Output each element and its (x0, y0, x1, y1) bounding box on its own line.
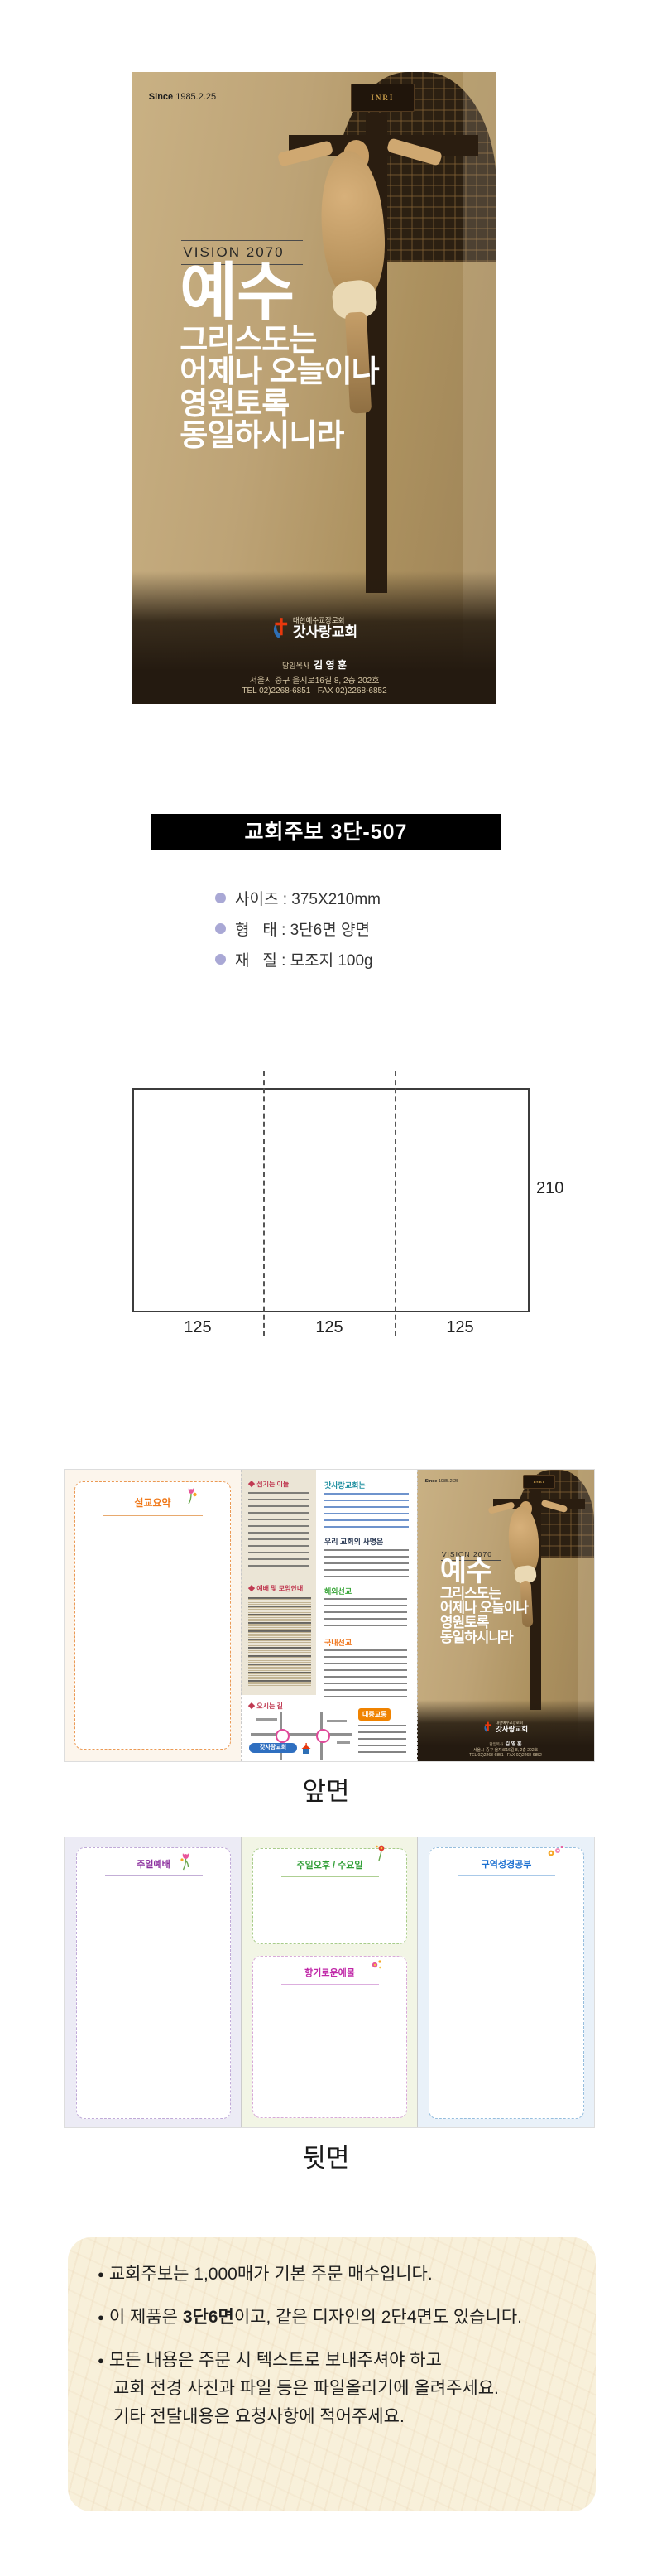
church-contact: TEL 02)2268-6851 FAX 02)2268-6852 (132, 686, 496, 696)
map-label (256, 1718, 277, 1721)
since-date: Since 1985.2.25 (425, 1479, 459, 1484)
diagram-width-label: 125 (173, 1318, 223, 1337)
note-text: 이 제품은 3단6면이고, 같은 디자인의 2단4면도 있습니다. (109, 2305, 522, 2330)
cover-headline: 예수 그리스도는 어제나 오늘이나 영원토록 동일하시니라 (440, 1558, 528, 1645)
bullet-dot-icon (215, 923, 226, 934)
overseas-mission-header: 해외선교 (324, 1586, 352, 1596)
note-text-bold: 3단6면 (183, 2308, 234, 2327)
placeholder-schedule-lines (248, 1597, 311, 1687)
church-address: 서울시 중구 을지로16길 8, 2층 202호 (132, 673, 496, 686)
bullet-icon: ● (98, 2348, 104, 2373)
pastor-label: 담임목사 (282, 662, 314, 670)
back-panel-sunday-worship: 주일예배 (65, 1837, 241, 2127)
church-name: 갓사랑교회 (496, 1726, 528, 1734)
product-specs: 사이즈 : 375X210mm 형 태 : 3단6면 양면 재 질 : 모조지 … (215, 883, 381, 975)
order-notes-box: ● 교회주보는 1,000매가 기본 주문 매수입니다. ● 이 제품은 3단6… (68, 2237, 596, 2511)
map-station-marker (316, 1729, 330, 1743)
offering-box: 향기로운예물 (252, 1956, 407, 2118)
pastor-line: 담임목사 김 영 훈 (417, 1740, 594, 1747)
church-logo: 대한예수교장로회 갓사랑교회 (483, 1721, 528, 1733)
note-item: ● 모든 내용은 주문 시 텍스트로 보내주셔야 하고 (98, 2348, 442, 2373)
map-road (251, 1733, 352, 1736)
headline-line: 어제나 오늘이나 (440, 1601, 528, 1615)
fold-line (241, 1470, 242, 1761)
flower-icon (369, 1958, 384, 1973)
since-date: Since 1985.2.25 (149, 92, 216, 102)
diagram-width-label: 125 (304, 1318, 354, 1337)
note-text-continuation: 기타 전달내용은 요청사항에 적어주세요. (113, 2405, 405, 2429)
sunday-worship-header: 주일예배 (77, 1857, 230, 1871)
header-underline (105, 1875, 203, 1876)
bullet-dot-icon (215, 954, 226, 965)
bullet-icon: ● (98, 2262, 104, 2287)
spec-format: 형 태 : 3단6면 양면 (215, 913, 381, 944)
tulip-icon (185, 1487, 198, 1505)
sunday-worship-box: 주일예배 (76, 1847, 231, 2119)
domestic-mission-header: 국내선교 (324, 1637, 352, 1648)
inri-plaque: INRI (523, 1475, 554, 1489)
spec-size: 사이즈 : 375X210mm (215, 883, 381, 913)
map-label (327, 1720, 347, 1722)
headline-line: 예수 (440, 1558, 528, 1586)
back-panel-bible-study: 구역성경공부 (417, 1837, 594, 2127)
pastor-line: 담임목사 김 영 훈 (132, 657, 496, 672)
note-text: 모든 내용은 주문 시 텍스트로 보내주셔야 하고 (109, 2348, 442, 2373)
note-item: ● 이 제품은 3단6면이고, 같은 디자인의 2단4면도 있습니다. (98, 2305, 522, 2330)
church-logo: 대한예수교장로회 갓사랑교회 (271, 617, 357, 641)
back-preview-caption: 뒷면 (0, 2137, 652, 2174)
headline-line: 그리스도는 (180, 325, 379, 356)
church-address: 서울시 중구 을지로16길 8, 2층 202호 (417, 1747, 594, 1753)
back-side-preview: 주일예배 주일오후 / 수요일 향기로운예물 (65, 1837, 594, 2127)
sermon-summary-header: 설교요약 (75, 1495, 230, 1509)
pastor-label: 담임목사 (490, 1742, 506, 1746)
serving-header: ◆ 섬기는 이들 (248, 1480, 289, 1489)
placeholder-text-lines (248, 1492, 309, 1572)
afternoon-wednesday-box: 주일오후 / 수요일 (252, 1848, 407, 1944)
front-panel-sermon: 설교요약 (65, 1470, 241, 1761)
fold-line (241, 1837, 242, 2127)
church-logo-text: 대한예수교장로회 갓사랑교회 (496, 1721, 528, 1733)
header-underline (103, 1515, 203, 1516)
note-text-continuation: 교회 전경 사진과 파일 등은 파일올리기에 올려주세요. (113, 2376, 499, 2401)
since-label: Since (149, 92, 175, 102)
church-logo-text: 대한예수교장로회 갓사랑교회 (293, 617, 357, 641)
spec-paper: 재 질 : 모조지 100g (215, 944, 381, 975)
since-value: 1985.2.25 (175, 92, 216, 102)
placeholder-transit-lines (358, 1725, 406, 1753)
fold-line (417, 1837, 418, 2127)
product-title-bar: 교회주보 3단-507 (151, 814, 501, 850)
headline-line: 영원토록 (440, 1615, 528, 1630)
spec-text: 형 태 : 3단6면 양면 (235, 917, 370, 940)
headline-line: 동일하시니라 (440, 1630, 528, 1645)
since-value: 1985.2.25 (439, 1479, 458, 1484)
worship-header: ◆ 예배 및 모임안내 (248, 1584, 303, 1593)
fold-line (417, 1470, 418, 1761)
placeholder-text-lines (324, 1549, 409, 1579)
tulip-icon (180, 1851, 193, 1871)
church-name: 갓사랑교회 (293, 624, 357, 641)
map-church-tag: 갓사랑교회 (249, 1743, 297, 1753)
cross-logo-icon (271, 617, 290, 640)
headline-line: 예수 (180, 262, 379, 324)
header-underline (281, 1984, 379, 1985)
note-text: 교회주보는 1,000매가 기본 주문 매수입니다. (109, 2262, 433, 2287)
fold-line-dashed (263, 1071, 265, 1336)
flower-icon (374, 1844, 387, 1862)
map-label (337, 1741, 350, 1744)
about-church-header: 갓사랑교회는 (324, 1480, 366, 1490)
headline-line: 그리스도는 (440, 1587, 528, 1601)
fold-diagram-rectangle (132, 1088, 530, 1312)
diagram-height-label: 210 (536, 1179, 563, 1198)
church-mission-header: 우리 교회의 사명은 (324, 1536, 383, 1547)
map-station-marker (276, 1729, 290, 1743)
headline-line: 동일하시니라 (180, 420, 379, 451)
header-underline (458, 1875, 555, 1876)
pastor-name: 김 영 훈 (314, 659, 347, 671)
headline-line: 영원토록 (180, 388, 379, 420)
spec-text: 사이즈 : 375X210mm (235, 887, 381, 909)
front-side-preview: 설교요약 ◆ 섬기는 이들 ◆ 예배 및 모임안내 갓사랑교회는 우리 교회의 … (65, 1470, 594, 1761)
directions-header: ◆ 오시는 길 (248, 1702, 283, 1711)
church-contact: TEL 02)2268-6851 FAX 02)2268-6852 (417, 1753, 594, 1758)
front-panel-info: ◆ 섬기는 이들 ◆ 예배 및 모임안내 갓사랑교회는 우리 교회의 사명은 해… (241, 1470, 417, 1761)
placeholder-name-lines (324, 1649, 407, 1697)
spec-text: 재 질 : 모조지 100g (235, 948, 373, 970)
note-text-segment: 이고, 같은 디자인의 2단4면도 있습니다. (234, 2308, 522, 2327)
note-text-segment: 이 제품은 (109, 2308, 183, 2327)
bullet-dot-icon (215, 893, 226, 903)
placeholder-name-lines (324, 1598, 407, 1631)
flower-icon (545, 1845, 565, 1861)
denomination-name: 대한예수교장로회 (293, 617, 357, 625)
inri-plaque: INRI (351, 84, 415, 112)
front-panel-cover: INRI Since 1985.2.25 VISION 2070 예수 그리스도… (417, 1470, 594, 1761)
transit-badge: 대중교통 (358, 1708, 391, 1721)
bible-study-box: 구역성경공부 (429, 1847, 584, 2119)
note-item: ● 교회주보는 1,000매가 기본 주문 매수입니다. (98, 2262, 433, 2287)
fold-line-dashed (395, 1071, 396, 1336)
front-preview-caption: 앞면 (0, 1770, 652, 1808)
since-label: Since (425, 1479, 439, 1484)
cover-headline: 예수 그리스도는 어제나 오늘이나 영원토록 동일하시니라 (180, 262, 379, 451)
header-underline (281, 1876, 379, 1877)
cross-logo-icon (483, 1721, 492, 1733)
bulletin-cover-image: INRI Since 1985.2.25 VISION 2070 예수 그리스도… (132, 72, 496, 704)
placeholder-text-lines (324, 1493, 409, 1529)
sermon-summary-box: 설교요약 (74, 1481, 231, 1750)
bullet-icon: ● (98, 2305, 104, 2330)
headline-line: 어제나 오늘이나 (180, 356, 379, 388)
back-panel-afternoon-wednesday: 주일오후 / 수요일 향기로운예물 (241, 1837, 417, 2127)
church-building-icon (300, 1743, 311, 1755)
diagram-width-label: 125 (435, 1318, 485, 1337)
